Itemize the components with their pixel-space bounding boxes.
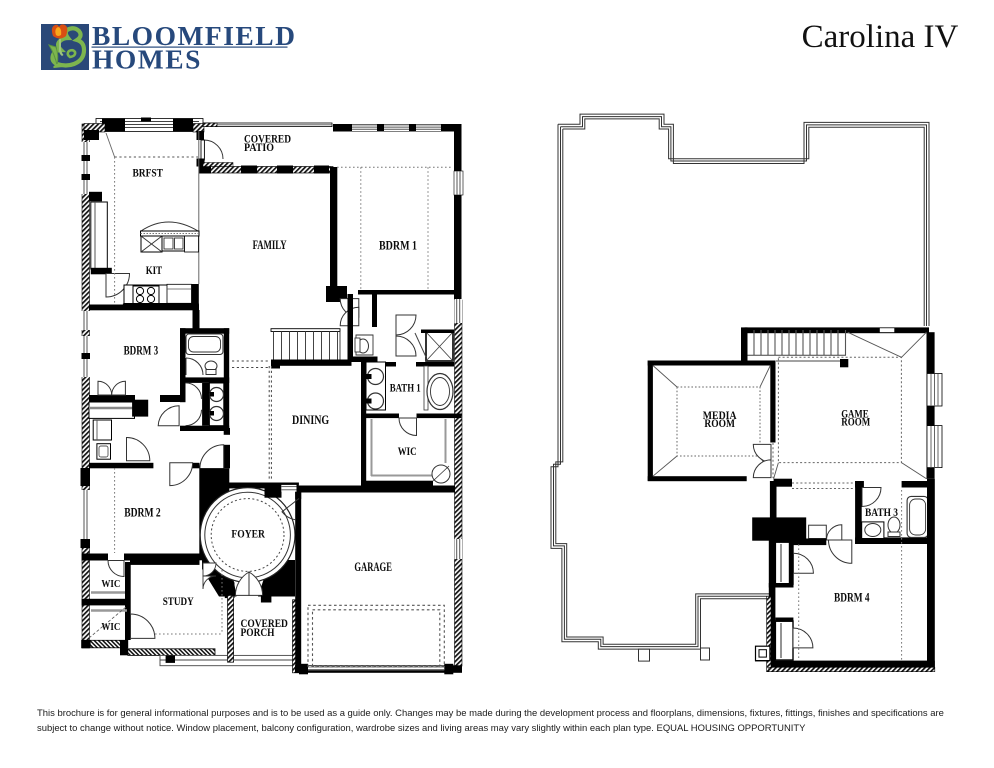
svg-text:BDRM 1: BDRM 1: [379, 238, 417, 252]
svg-text:STUDY: STUDY: [163, 594, 194, 608]
svg-text:FOYER: FOYER: [231, 527, 265, 541]
svg-text:DINING: DINING: [292, 413, 329, 427]
svg-text:This brochure is for general i: This brochure is for general information…: [37, 708, 944, 719]
svg-text:GARAGE: GARAGE: [354, 560, 392, 574]
svg-text:subject to change without noti: subject to change without notice. Window…: [37, 723, 806, 734]
svg-text:BDRM 2: BDRM 2: [124, 506, 161, 520]
svg-text:Carolina IV: Carolina IV: [802, 19, 959, 55]
svg-text:BATH 1: BATH 1: [390, 383, 421, 395]
svg-text:BRFST: BRFST: [133, 166, 164, 180]
svg-text:BATH 3: BATH 3: [865, 507, 898, 519]
svg-text:PATIO: PATIO: [244, 142, 274, 154]
svg-text:HOMES: HOMES: [92, 44, 202, 75]
svg-text:BDRM 4: BDRM 4: [834, 591, 870, 605]
svg-text:WIC: WIC: [398, 446, 417, 458]
svg-text:ROOM: ROOM: [704, 416, 735, 430]
svg-text:WIC: WIC: [101, 621, 120, 633]
svg-text:ROOM: ROOM: [841, 415, 870, 429]
svg-text:BDRM 3: BDRM 3: [124, 344, 159, 358]
svg-text:KIT: KIT: [146, 263, 163, 277]
svg-text:FAMILY: FAMILY: [253, 238, 287, 252]
svg-text:WIC: WIC: [101, 578, 120, 590]
svg-text:PORCH: PORCH: [241, 627, 275, 639]
